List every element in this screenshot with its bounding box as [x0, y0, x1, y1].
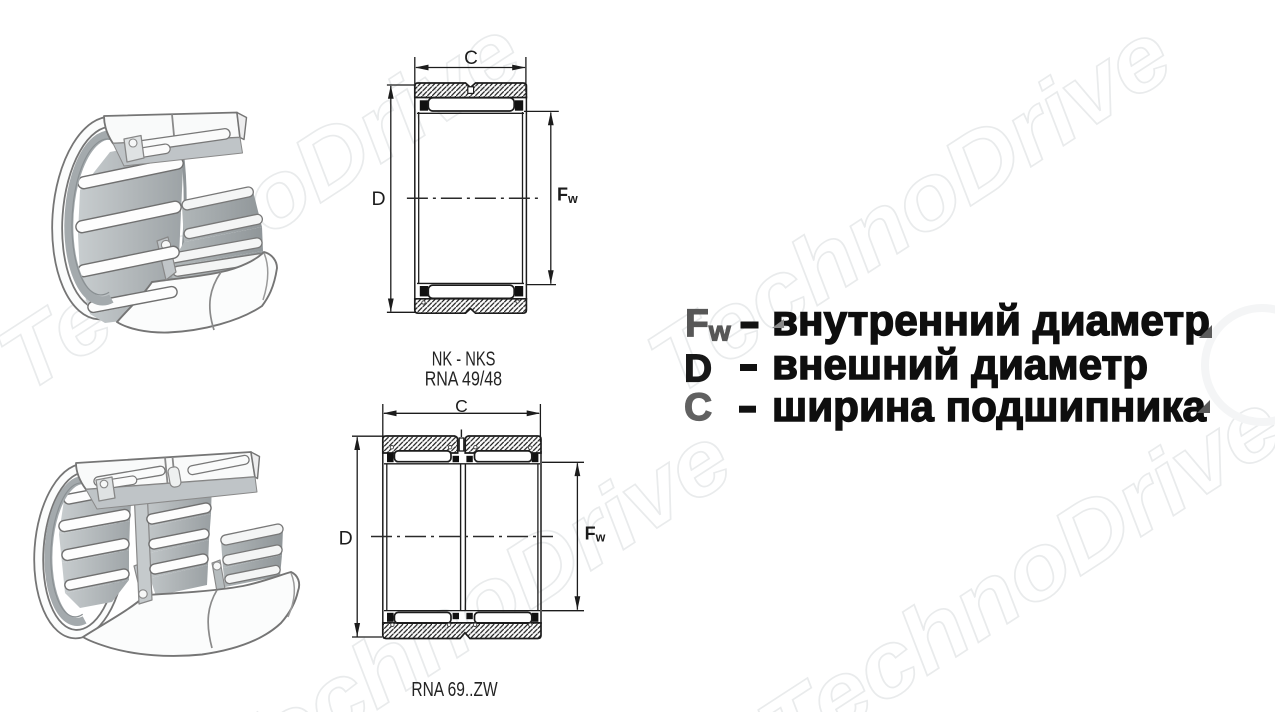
svg-text:D: D — [684, 347, 712, 390]
svg-text:C: C — [684, 386, 712, 429]
svg-text:Fw: Fw — [557, 185, 578, 206]
svg-text:NK - NKS: NK - NKS — [432, 347, 496, 370]
svg-text:внутренний диаметр: внутренний диаметр — [772, 298, 1210, 345]
svg-text:C: C — [455, 396, 468, 416]
svg-text:C: C — [464, 48, 478, 69]
svg-text:внешний диаметр: внешний диаметр — [772, 342, 1148, 389]
svg-text:RNA 69..ZW: RNA 69..ZW — [411, 679, 497, 701]
svg-text:D: D — [339, 528, 353, 550]
svg-text:RNA 49/48: RNA 49/48 — [425, 368, 502, 390]
svg-text:D: D — [371, 188, 385, 210]
svg-text:ширина подшипника: ширина подшипника — [772, 384, 1206, 431]
